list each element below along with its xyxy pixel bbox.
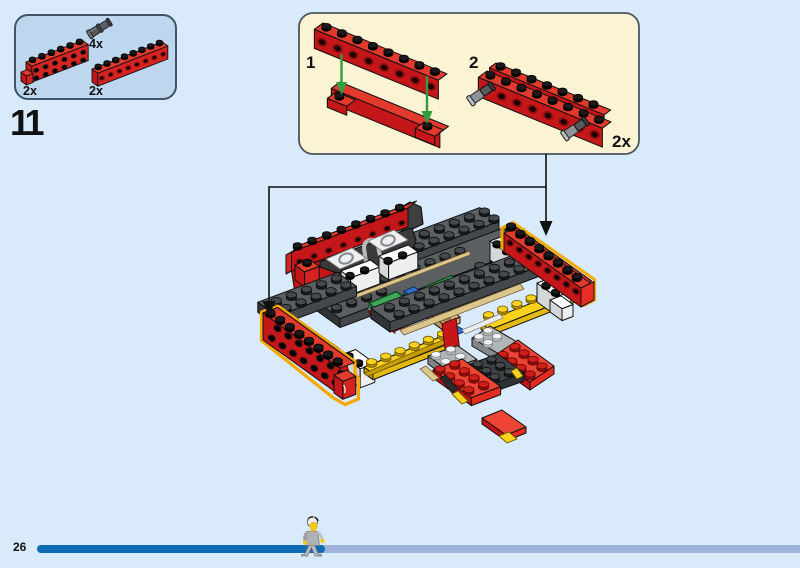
svg-text:2x: 2x	[612, 132, 631, 151]
svg-text:26: 26	[13, 540, 27, 554]
svg-text:1: 1	[25, 102, 45, 143]
svg-text:2: 2	[469, 53, 478, 72]
svg-text:1: 1	[306, 53, 315, 72]
svg-text:2x: 2x	[23, 84, 37, 98]
svg-text:4x: 4x	[89, 37, 103, 51]
svg-text:2x: 2x	[89, 84, 103, 98]
